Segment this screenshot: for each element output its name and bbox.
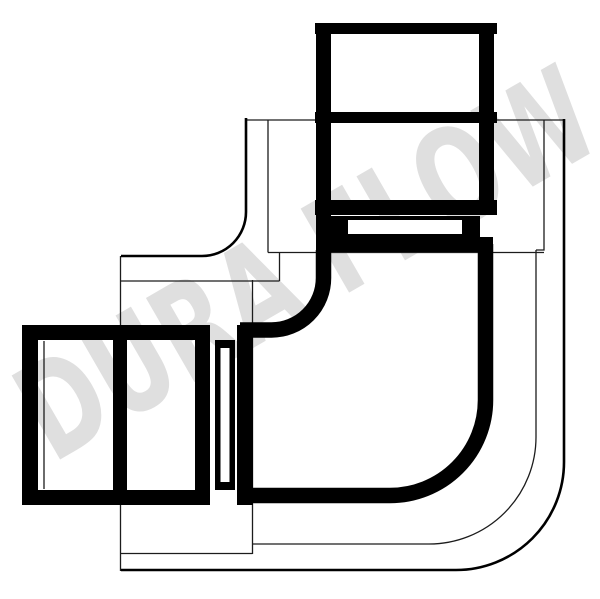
top-socket-rim <box>315 23 497 34</box>
left-socket-ridge-slot <box>221 348 230 482</box>
left-socket-hub-end-bar <box>195 325 210 505</box>
left-socket-stop-bar <box>237 325 253 505</box>
top-socket-hub-end-band <box>315 200 497 215</box>
elbow-fitting-drawing: DURA FLOW <box>0 0 600 599</box>
top-socket-depth-band <box>315 112 497 123</box>
left-socket-rim <box>22 325 38 505</box>
elbow-fitting-illustration: DURA FLOW <box>0 0 600 599</box>
left-socket-depth-band <box>113 325 127 505</box>
top-socket-stop-bar <box>317 237 493 252</box>
top-socket-ridge-slot <box>348 220 462 234</box>
top-socket-left-wall <box>316 23 331 257</box>
